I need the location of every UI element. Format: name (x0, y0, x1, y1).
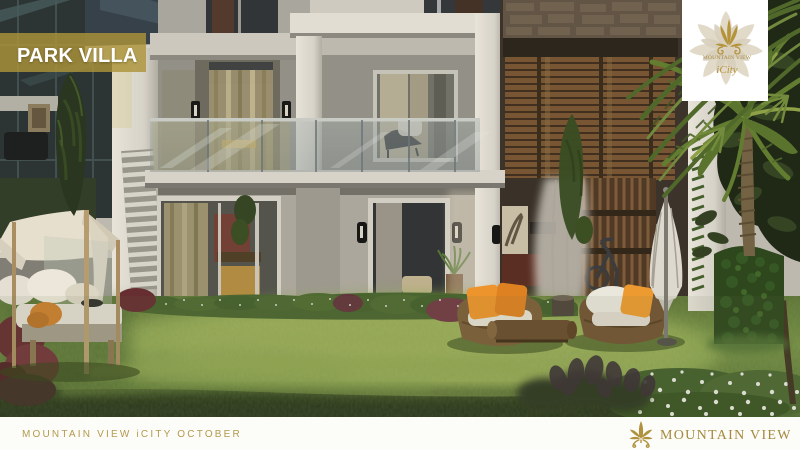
svg-text:iCity: iCity (716, 64, 738, 76)
svg-text:MOUNTAIN VIEW: MOUNTAIN VIEW (660, 428, 790, 443)
svg-text:MOUNTAIN VIEW: MOUNTAIN VIEW (703, 55, 752, 61)
